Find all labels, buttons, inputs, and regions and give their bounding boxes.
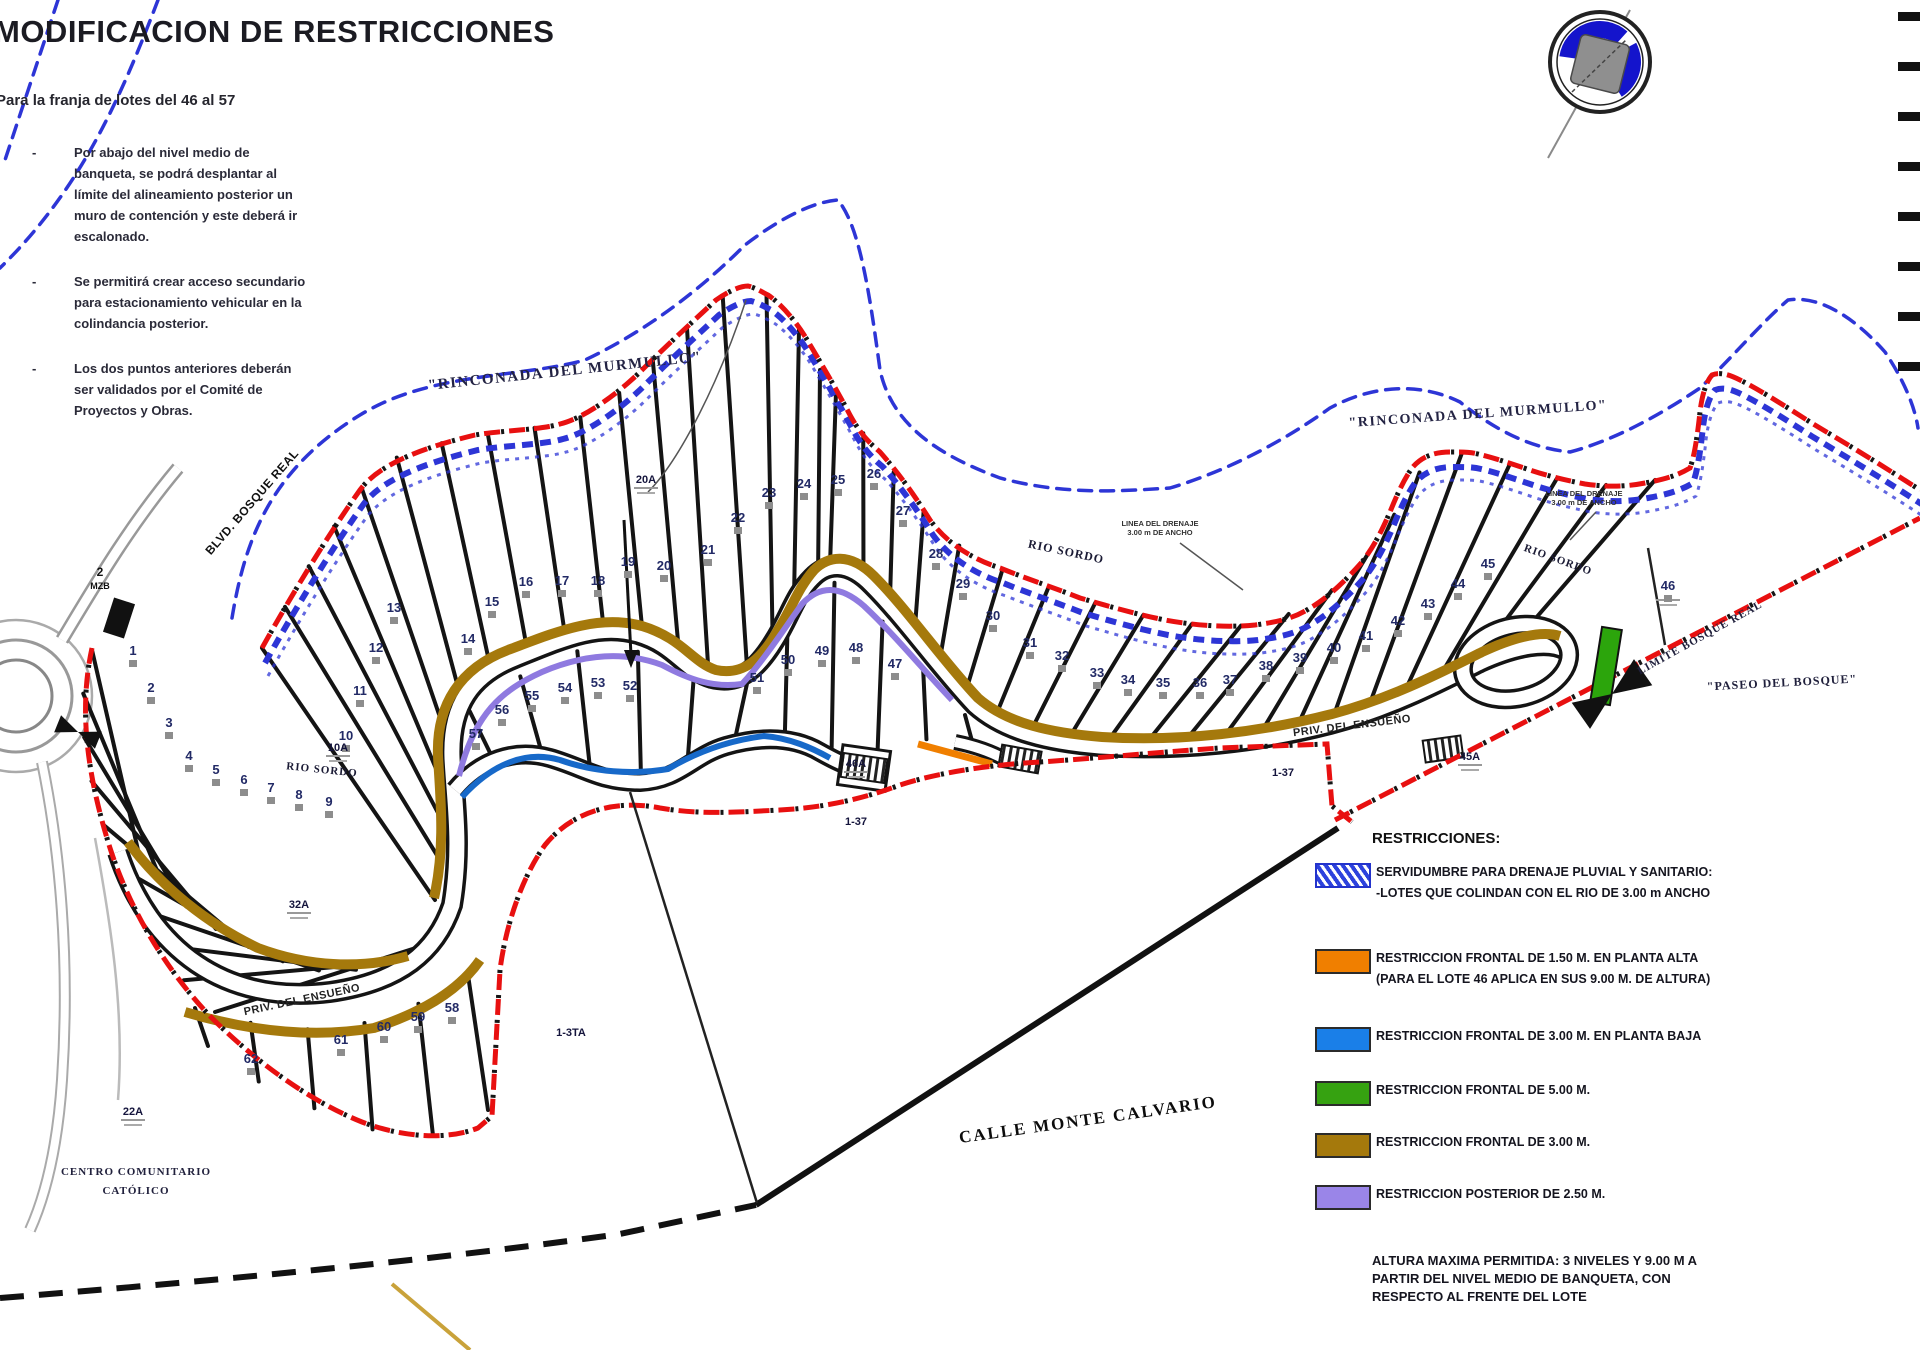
- lot-number-28: 28: [929, 546, 943, 561]
- legend-item-2: RESTRICCION FRONTAL DE 1.50 M. EN PLANTA…: [1315, 948, 1710, 990]
- lot-glyph: [528, 705, 536, 712]
- legend-swatch-6: [1315, 1185, 1371, 1210]
- lot-number-12: 12: [369, 640, 383, 655]
- lot-glyph: [891, 673, 899, 680]
- lot-number-13: 13: [387, 600, 401, 615]
- lot-number-49: 49: [815, 643, 829, 658]
- lot-glyph: [1454, 593, 1462, 600]
- lot-glyph: [870, 483, 878, 490]
- lot-line: [580, 417, 604, 629]
- south-road: [30, 762, 65, 1230]
- lot-number-30: 30: [986, 608, 1000, 623]
- sheet-edge-tick: [1898, 62, 1920, 71]
- lot-line: [766, 294, 772, 647]
- lot-glyph: [558, 590, 566, 597]
- block-marker: [103, 597, 135, 638]
- lot-glyph: [240, 789, 248, 796]
- legend-label-6: RESTRICCION POSTERIOR DE 2.50 M.: [1376, 1184, 1605, 1205]
- legend-swatch-5: [1315, 1133, 1371, 1158]
- lot-glyph: [488, 611, 496, 618]
- lot-glyph: [1330, 657, 1338, 664]
- sheet-edge-tick: [1898, 362, 1920, 371]
- lot-number-27: 27: [896, 503, 910, 518]
- lot-glyph: [380, 1036, 388, 1043]
- lot-number-59: 59: [411, 1009, 425, 1024]
- lot-number-3: 3: [165, 715, 172, 730]
- lot-glyph: [624, 571, 632, 578]
- lot-number-29: 29: [956, 576, 970, 591]
- striped-box: [841, 753, 888, 783]
- lot-line: [831, 583, 834, 759]
- page-title: MODIFICACION DE RESTRICCIONES: [0, 14, 554, 50]
- lot-glyph: [1664, 595, 1672, 602]
- lot-line: [653, 360, 679, 655]
- lot-glyph: [1362, 645, 1370, 652]
- lot-glyph: [852, 657, 860, 664]
- note-item-3: Los dos puntos anteriores deberán ser va…: [6, 358, 306, 421]
- roundabout-inner: [0, 660, 52, 732]
- lot-glyph: [464, 648, 472, 655]
- lot-glyph: [784, 669, 792, 676]
- lot-number-21: 21: [701, 542, 715, 557]
- lot-glyph: [765, 502, 773, 509]
- lot-number-11: 11: [353, 683, 367, 698]
- lot-glyph: [165, 732, 173, 739]
- lot-glyph: [1093, 682, 1101, 689]
- lot-number-58: 58: [445, 1000, 459, 1015]
- legend-label-4: RESTRICCION FRONTAL DE 5.00 M.: [1376, 1080, 1590, 1101]
- lot-glyph: [325, 811, 333, 818]
- lot-number-7: 7: [267, 780, 274, 795]
- lot-glyph: [1226, 689, 1234, 696]
- lot-glyph: [704, 559, 712, 566]
- lot-number-14: 14: [461, 631, 476, 646]
- lot-glyph: [561, 697, 569, 704]
- lot-line: [92, 650, 138, 850]
- notes-block: Por abajo del nivel medio de banqueta, s…: [6, 142, 306, 445]
- lot-glyph: [818, 660, 826, 667]
- lot-glyph: [989, 625, 997, 632]
- lot-line: [468, 975, 488, 1110]
- lot-number-38: 38: [1259, 658, 1273, 673]
- lot-number-5: 5: [212, 762, 219, 777]
- lot-glyph: [834, 489, 842, 496]
- lot-glyph: [1484, 573, 1492, 580]
- legend-item-6: RESTRICCION POSTERIOR DE 2.50 M.: [1315, 1184, 1605, 1210]
- lot-number-26: 26: [867, 466, 881, 481]
- lot-number-15: 15: [485, 594, 499, 609]
- lot-number-20: 20: [657, 558, 671, 573]
- legend-item-1: SERVIDUMBRE PARA DRENAJE PLUVIAL Y SANIT…: [1315, 862, 1712, 904]
- lot-glyph: [753, 687, 761, 694]
- lot-line: [687, 327, 709, 680]
- lot-number-41: 41: [1359, 628, 1373, 643]
- note-item-1: Por abajo del nivel medio de banqueta, s…: [6, 142, 306, 247]
- lot-glyph: [185, 765, 193, 772]
- lot-number-43: 43: [1421, 596, 1435, 611]
- legend-item-5: RESTRICCION FRONTAL DE 3.00 M.: [1315, 1132, 1590, 1158]
- lot-glyph: [1296, 667, 1304, 674]
- legend-swatch-4: [1315, 1081, 1371, 1106]
- legend-item-3: RESTRICCION FRONTAL DE 3.00 M. EN PLANTA…: [1315, 1026, 1701, 1052]
- lot-glyph: [147, 697, 155, 704]
- lot46-line: [1648, 548, 1665, 645]
- lot-line: [364, 1023, 372, 1129]
- sheet-edge-tick: [1898, 262, 1920, 271]
- lot-number-4: 4: [185, 748, 193, 763]
- lot-line: [688, 679, 694, 760]
- lot-glyph: [1124, 689, 1132, 696]
- lot-glyph: [800, 493, 808, 500]
- lot-glyph: [372, 657, 380, 664]
- lot-glyph: [522, 591, 530, 598]
- lot-number-6: 6: [240, 772, 247, 787]
- lot-glyph: [1058, 665, 1066, 672]
- lot-number-24: 24: [797, 476, 812, 491]
- lot-glyph: [337, 1049, 345, 1056]
- lot-glyph: [498, 719, 506, 726]
- lot-number-35: 35: [1156, 675, 1170, 690]
- legend-swatch-3: [1315, 1027, 1371, 1052]
- lot-number-40: 40: [1327, 640, 1341, 655]
- lot-glyph: [1394, 630, 1402, 637]
- lot-number-16: 16: [519, 574, 533, 589]
- diagonal-property-line: [756, 828, 1338, 1205]
- lot-line: [619, 393, 643, 639]
- lot-glyph: [594, 692, 602, 699]
- lot-line: [488, 434, 529, 657]
- lot-line: [535, 428, 566, 641]
- lot-number-42: 42: [1391, 613, 1405, 628]
- sheet-edge-tick: [1898, 112, 1920, 121]
- leader-line: [1180, 543, 1243, 590]
- site-plan-sheet: 1011121314151617181920212223242526272829…: [0, 0, 1920, 1350]
- lot-number-60: 60: [377, 1019, 391, 1034]
- lot-glyph: [342, 745, 350, 752]
- parcel-line: [630, 792, 757, 1203]
- lot-number-23: 23: [762, 485, 776, 500]
- lot-number-47: 47: [888, 656, 902, 671]
- legend-label-2: RESTRICCION FRONTAL DE 1.50 M. EN PLANTA…: [1376, 948, 1710, 990]
- lot-glyph: [1196, 692, 1204, 699]
- legend-label-3: RESTRICCION FRONTAL DE 3.00 M. EN PLANTA…: [1376, 1026, 1701, 1047]
- lot-number-45: 45: [1481, 556, 1495, 571]
- north-boundary-ticks: [262, 286, 1920, 648]
- lot-line: [309, 566, 442, 819]
- lot-number-39: 39: [1293, 650, 1307, 665]
- lot-glyph: [899, 520, 907, 527]
- lot-number-54: 54: [558, 680, 573, 695]
- lot-glyph: [295, 804, 303, 811]
- legend-label-5: RESTRICCION FRONTAL DE 3.00 M.: [1376, 1132, 1590, 1153]
- lot-glyph: [1262, 675, 1270, 682]
- lot-number-51: 51: [750, 670, 764, 685]
- sheet-edge-tick: [1898, 212, 1920, 221]
- lot-glyph: [1026, 652, 1034, 659]
- lot-glyph: [267, 797, 275, 804]
- lot-glyph: [959, 593, 967, 600]
- lot-line: [923, 669, 926, 739]
- legend-swatch-2: [1315, 949, 1371, 974]
- lot-number-52: 52: [623, 678, 637, 693]
- lot-glyph: [247, 1068, 255, 1075]
- lot-number-46: 46: [1661, 578, 1675, 593]
- river-band: [265, 301, 1920, 676]
- lot-number-34: 34: [1121, 672, 1136, 687]
- lot-number-37: 37: [1223, 672, 1237, 687]
- sheet-edge-tick: [1898, 312, 1920, 321]
- legend: RESTRICCIONES: SERVIDUMBRE PARA DRENAJE …: [1315, 830, 1920, 855]
- lot-number-62: 62: [244, 1051, 258, 1066]
- sheet-edge-tick: [1898, 12, 1920, 21]
- north-boundary: [262, 286, 1920, 648]
- lot-number-22: 22: [731, 510, 745, 525]
- lot-number-50: 50: [781, 652, 795, 667]
- lot-glyph: [356, 700, 364, 707]
- lot-line: [1104, 624, 1192, 746]
- lot-line: [262, 648, 435, 900]
- lot-glyph: [472, 743, 480, 750]
- legend-swatch-1: [1315, 863, 1371, 888]
- lot-number-57: 57: [469, 726, 483, 741]
- lot-glyph: [414, 1026, 422, 1033]
- lot-number-33: 33: [1090, 665, 1104, 680]
- lot-line: [818, 370, 820, 580]
- south-dashed-boundary: [0, 1205, 756, 1298]
- lot-line: [794, 328, 799, 612]
- lot-number-53: 53: [591, 675, 605, 690]
- lot-number-48: 48: [849, 640, 863, 655]
- lot-glyph: [1159, 692, 1167, 699]
- lot-number-44: 44: [1451, 576, 1466, 591]
- lot-number-32: 32: [1055, 648, 1069, 663]
- legend-item-4: RESTRICCION FRONTAL DE 5.00 M.: [1315, 1080, 1590, 1106]
- lot-number-56: 56: [495, 702, 509, 717]
- max-height-note: ALTURA MAXIMA PERMITIDA: 3 NIVELES Y 9.0…: [1372, 1252, 1697, 1306]
- lot-glyph: [212, 779, 220, 786]
- lot-glyph: [129, 660, 137, 667]
- lot-glyph: [1424, 613, 1432, 620]
- colonia-boundary-line: [232, 200, 1918, 618]
- lot-glyph: [390, 617, 398, 624]
- lot-number-61: 61: [334, 1032, 348, 1047]
- page-subtitle: Para la franja de lotes del 46 al 57: [0, 92, 235, 109]
- lot-number-55: 55: [525, 688, 539, 703]
- lot-glyph: [594, 590, 602, 597]
- lot-number-9: 9: [325, 794, 332, 809]
- lot-line: [878, 622, 883, 750]
- lot-number-1: 1: [129, 643, 136, 658]
- lot-line: [577, 651, 590, 774]
- lot-glyph: [626, 695, 634, 702]
- lot-glyph: [932, 563, 940, 570]
- legend-label-1: SERVIDUMBRE PARA DRENAJE PLUVIAL Y SANIT…: [1376, 862, 1712, 904]
- lot-line: [638, 652, 641, 777]
- green-band: [1590, 627, 1622, 705]
- lot-number-8: 8: [295, 787, 302, 802]
- yellow-utility-line: [392, 1284, 470, 1350]
- lot-number-10: 10: [339, 728, 353, 743]
- lot-number-36: 36: [1193, 675, 1207, 690]
- lot-number-25: 25: [831, 472, 845, 487]
- lot-number-17: 17: [555, 573, 569, 588]
- lot-number-31: 31: [1023, 635, 1037, 650]
- legend-title: RESTRICCIONES:: [1372, 830, 1920, 847]
- striped-box: [998, 745, 1041, 774]
- lot-glyph: [448, 1017, 456, 1024]
- lot-number-18: 18: [591, 573, 605, 588]
- sheet-edge-tick: [1898, 162, 1920, 171]
- lot-number-2: 2: [147, 680, 154, 695]
- note-item-2: Se permitirá crear acceso secundario par…: [6, 271, 306, 334]
- lot-line: [362, 488, 448, 739]
- lot-glyph: [660, 575, 668, 582]
- lot-glyph: [734, 527, 742, 534]
- lot-number-19: 19: [621, 554, 635, 569]
